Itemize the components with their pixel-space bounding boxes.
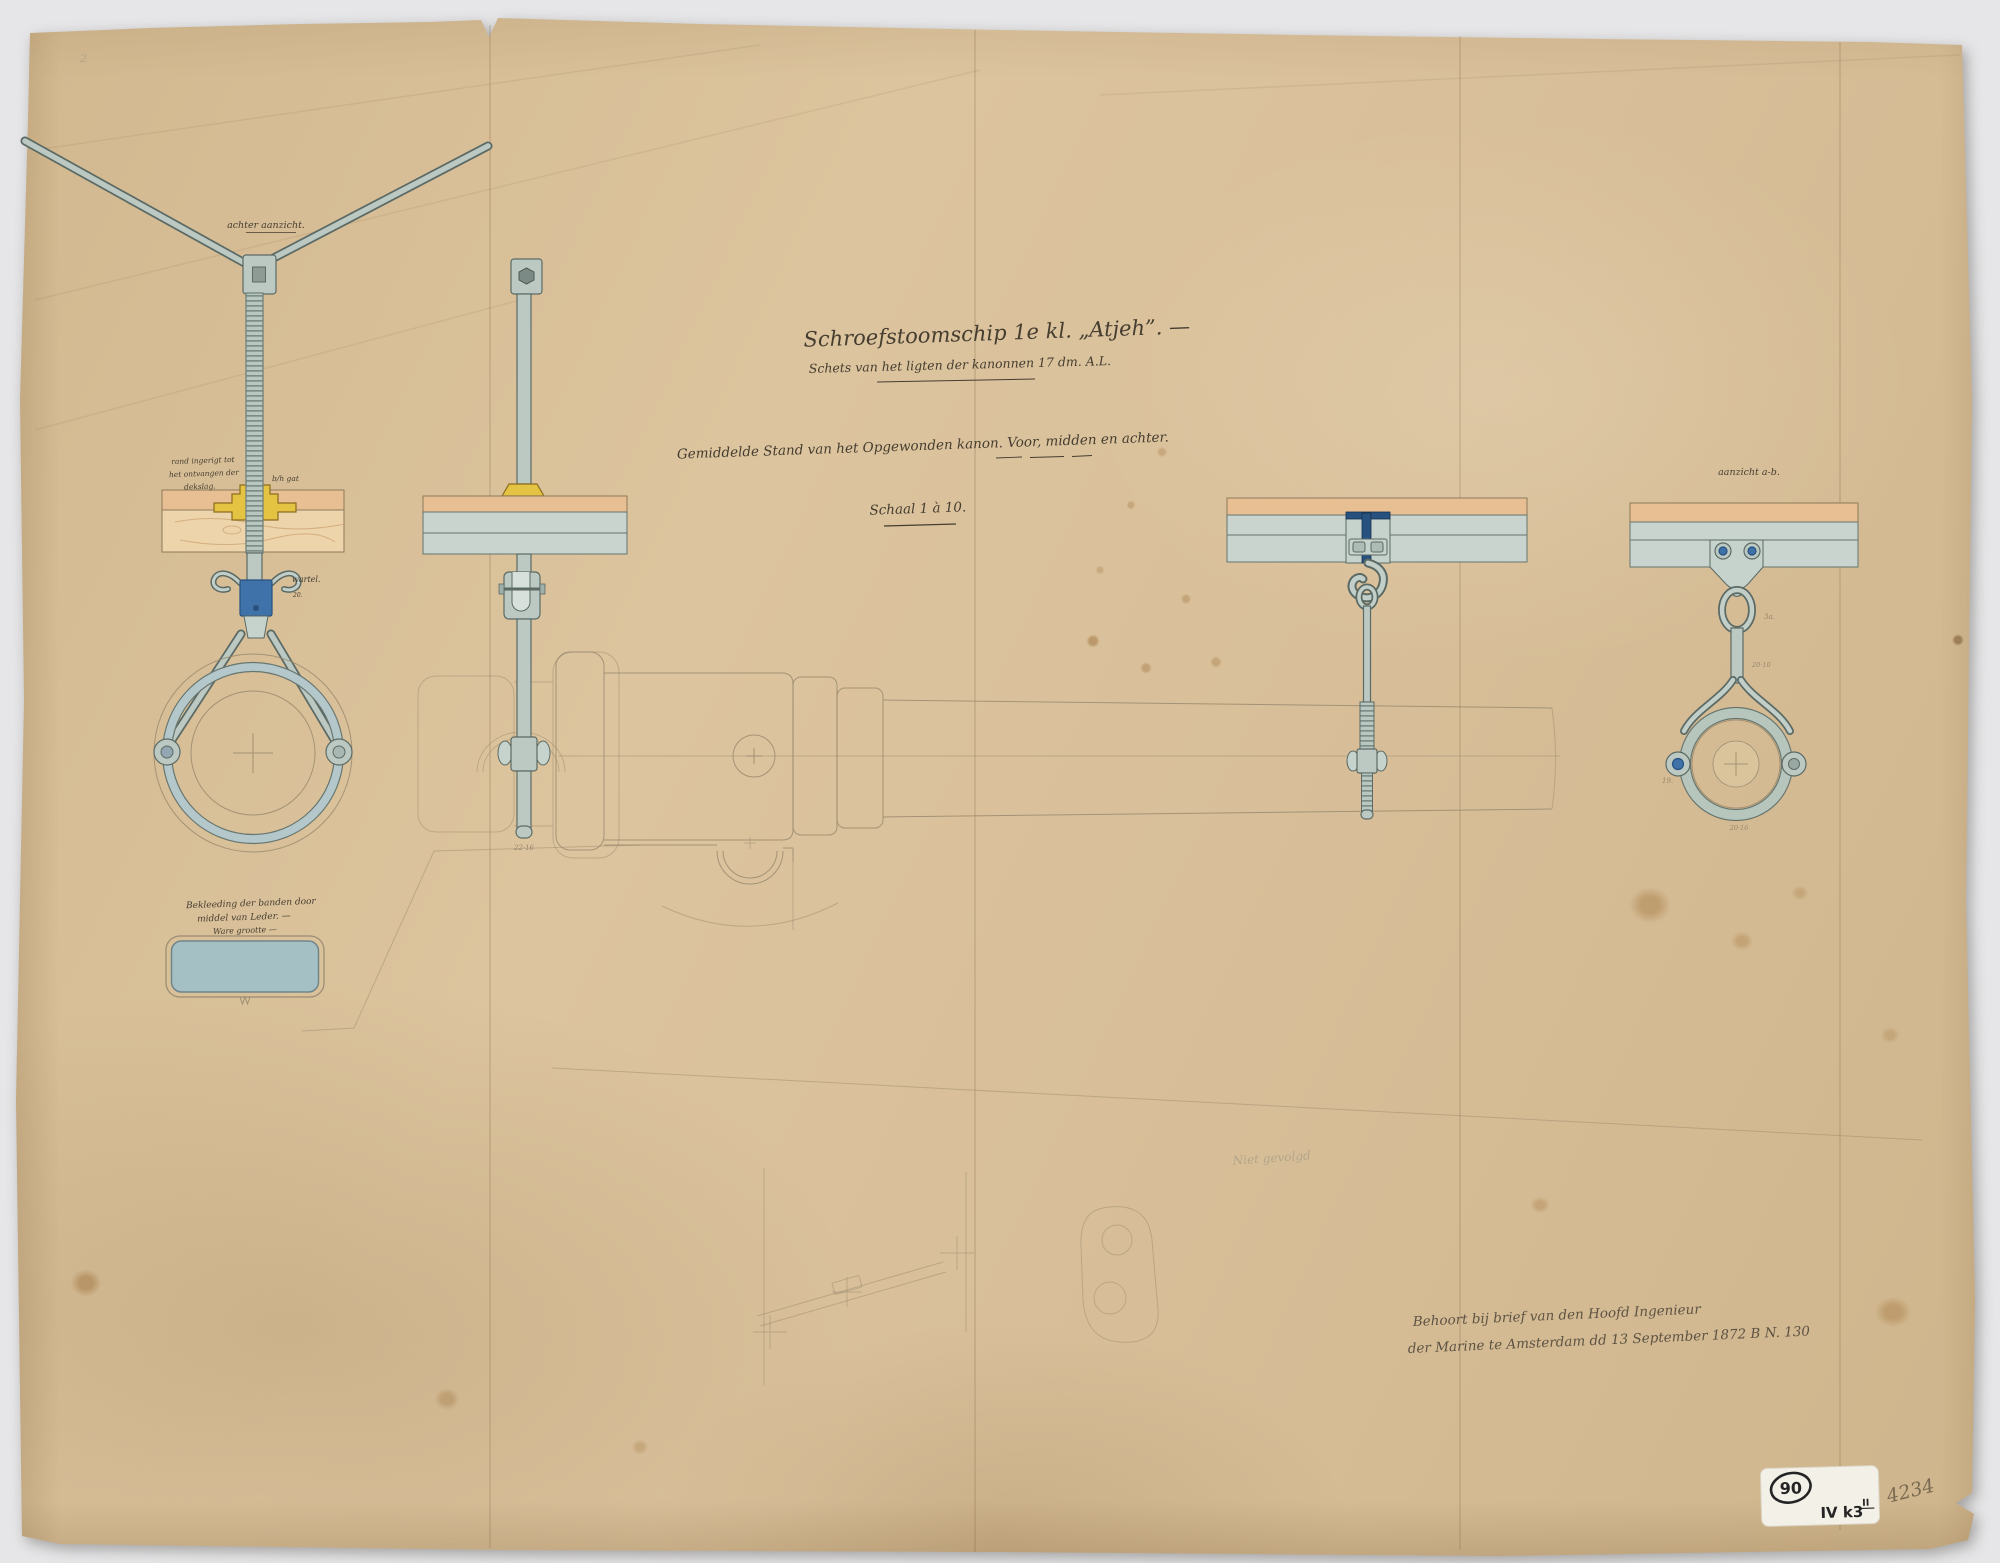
technical-drawing-layer: achter aanzicht. rand ingerigt tot het o… bbox=[0, 0, 2000, 1563]
swivel-label: wartel. bbox=[292, 575, 321, 584]
provenance-line1: Behoort bij brief van den Hoofd Ingenieu… bbox=[1411, 1301, 1702, 1330]
view-breech-rod-side: 22·16 bbox=[418, 259, 627, 858]
leather-band-detail: Bekleeding der banden door middel van Le… bbox=[166, 897, 324, 1004]
shank-size-label: 20·10 bbox=[1751, 661, 1771, 669]
trunnion-notch-outer bbox=[717, 851, 783, 884]
leather-band-full-size bbox=[172, 941, 319, 992]
provenance-note: Behoort bij brief van den Hoofd Ingenieu… bbox=[1407, 1301, 1810, 1357]
fold-creases bbox=[35, 25, 1960, 1552]
cannon-side-view-pencil bbox=[302, 652, 1922, 1140]
handle-bar-right bbox=[266, 146, 488, 262]
deck-plank-top bbox=[1630, 503, 1858, 522]
view-muzzle-sling: aanzicht a-b. bbox=[1630, 467, 1858, 832]
deck-beam bbox=[1630, 522, 1858, 540]
bolt-size-label: 19. bbox=[1662, 777, 1673, 785]
collar-lug-left bbox=[498, 741, 512, 765]
leather-note-line3: Ware grootte — bbox=[213, 925, 277, 936]
band-bolt-right-head bbox=[1789, 759, 1800, 770]
swivel-pin bbox=[253, 605, 259, 611]
breech-station-outline bbox=[553, 652, 619, 858]
leather-note-line2: middel van Leder. — bbox=[197, 911, 291, 924]
subtitle: Gemiddelde Stand van het Opgewonden kano… bbox=[677, 429, 1169, 462]
construction-line bbox=[552, 1068, 1922, 1140]
rear-view-caption: achter aanzicht. bbox=[227, 220, 305, 231]
view-hook-hanger bbox=[1227, 498, 1527, 819]
rod-collar bbox=[511, 737, 537, 771]
rod-upper bbox=[517, 294, 531, 484]
screw-head-socket bbox=[253, 267, 266, 282]
subtitle-underline bbox=[1030, 457, 1064, 458]
nut-note-line3: dekslag. bbox=[184, 481, 216, 491]
bracket-sketch-hole bbox=[1094, 1282, 1126, 1314]
carriage-arc bbox=[662, 903, 838, 926]
hex-nut bbox=[1371, 542, 1383, 552]
title-underline bbox=[877, 379, 1035, 382]
drawing-title-line2: Schets van het ligten der kanonnen 17 dm… bbox=[809, 353, 1112, 376]
brass-flange bbox=[502, 484, 544, 496]
barrel-bottom-line bbox=[883, 809, 1552, 817]
deck-beam bbox=[423, 533, 627, 554]
bracket-bolt-left-head bbox=[1719, 547, 1727, 555]
scale-underline bbox=[884, 524, 956, 526]
hanger-rod-threaded bbox=[1360, 702, 1374, 750]
swivel-size-label: 20. bbox=[292, 592, 303, 599]
handle-bar-left bbox=[25, 141, 250, 266]
rod-middle bbox=[517, 619, 531, 738]
subtitle-underline bbox=[1072, 456, 1092, 457]
clevis-slot bbox=[512, 572, 530, 611]
rod-lower bbox=[517, 771, 531, 828]
bracket-bolt-right-head bbox=[1748, 547, 1756, 555]
rod-size-label: 22·16 bbox=[513, 844, 535, 852]
band-size-label: 20·16 bbox=[1729, 824, 1749, 832]
hanger-rod-lower bbox=[1362, 773, 1373, 811]
trunnion-cross bbox=[746, 748, 762, 764]
band-bolt-left-head bbox=[1673, 759, 1684, 770]
cascabel-outline bbox=[556, 652, 604, 850]
rod-head-hex-hole bbox=[519, 268, 534, 284]
subtitle-underline bbox=[996, 457, 1022, 458]
diagonal-crease bbox=[35, 70, 980, 300]
sling-bolt-left-head bbox=[161, 746, 173, 758]
provenance-line2: der Marine te Amsterdam dd 13 September … bbox=[1407, 1323, 1810, 1357]
section-center-cross bbox=[233, 733, 273, 773]
muzzle-end-line bbox=[1552, 708, 1556, 809]
archive-label: 90 IV k3 II bbox=[1760, 1465, 1879, 1526]
rod-end-cap bbox=[516, 826, 532, 838]
collar-lug-right bbox=[536, 741, 550, 765]
drawing-title-line1: Schroefstoomschip 1e kl. „Atjeh”. — bbox=[803, 314, 1190, 351]
title-block: Schroefstoomschip 1e kl. „Atjeh”. — Sche… bbox=[677, 314, 1191, 526]
diagonal-crease bbox=[35, 300, 520, 430]
deck-plank-top bbox=[423, 496, 627, 512]
pencil-inventory-number: 4234 bbox=[1883, 1475, 1936, 1508]
carriage-slope bbox=[302, 845, 640, 1031]
rod-below-deck bbox=[517, 554, 531, 574]
band-ornament-mark bbox=[240, 997, 250, 1004]
clevis-pin-head bbox=[540, 584, 545, 594]
hanger-collar bbox=[1357, 749, 1377, 773]
swivel-fork bbox=[244, 616, 268, 638]
nut-note-line1: rand ingerigt tot bbox=[171, 455, 236, 466]
hanger-rod-thin bbox=[1364, 606, 1371, 702]
view-rear-hoisting-screw: achter aanzicht. rand ingerigt tot het o… bbox=[25, 141, 488, 852]
trunnion-notch-inner bbox=[723, 851, 777, 878]
construction-band bbox=[757, 1262, 946, 1326]
barrel-top-line bbox=[883, 700, 1552, 708]
yoke-arm-left bbox=[168, 634, 241, 746]
hanger-rod-end bbox=[1361, 810, 1373, 819]
inventory-code-superscript: II bbox=[1862, 1498, 1869, 1509]
circled-number: 90 bbox=[1779, 1478, 1802, 1498]
threaded-screw bbox=[246, 293, 263, 553]
corner-pencil-mark: 2 bbox=[79, 52, 87, 65]
yoke-shank bbox=[1731, 628, 1743, 683]
deck-beam bbox=[423, 512, 627, 533]
pencil-annotation: Niet gevolgd bbox=[1231, 1148, 1311, 1168]
scanned-drawing-sheet: achter aanzicht. rand ingerigt tot het o… bbox=[0, 0, 2000, 1563]
diagonal-crease bbox=[1100, 55, 1960, 95]
inventory-code: IV k3 bbox=[1820, 1503, 1863, 1522]
view-ab-caption: aanzicht a-b. bbox=[1718, 467, 1780, 478]
nut-note-line2: het ontvangen der bbox=[169, 468, 240, 479]
pencil-construction-sketches: Niet gevolgd bbox=[753, 1148, 1311, 1385]
link-size-label: 3a. bbox=[1764, 613, 1775, 621]
construction-cross bbox=[940, 1236, 974, 1270]
hole-note: b/h gat bbox=[272, 474, 300, 483]
carriage-top-edge bbox=[604, 845, 793, 862]
scale-label: Schaal 1 à 10. bbox=[869, 499, 966, 518]
clevis-pin-head bbox=[499, 584, 504, 594]
diagonal-crease bbox=[35, 45, 760, 150]
bracket-sketch-hole bbox=[1102, 1225, 1132, 1255]
carriage-cross bbox=[744, 837, 756, 849]
breech-ring-2 bbox=[837, 688, 883, 828]
sling-bolt-right-head bbox=[333, 746, 345, 758]
hex-nut bbox=[1353, 542, 1365, 552]
leather-note-line1: Bekleeding der banden door bbox=[185, 897, 317, 912]
bracket-sketch-outline bbox=[1081, 1207, 1158, 1343]
